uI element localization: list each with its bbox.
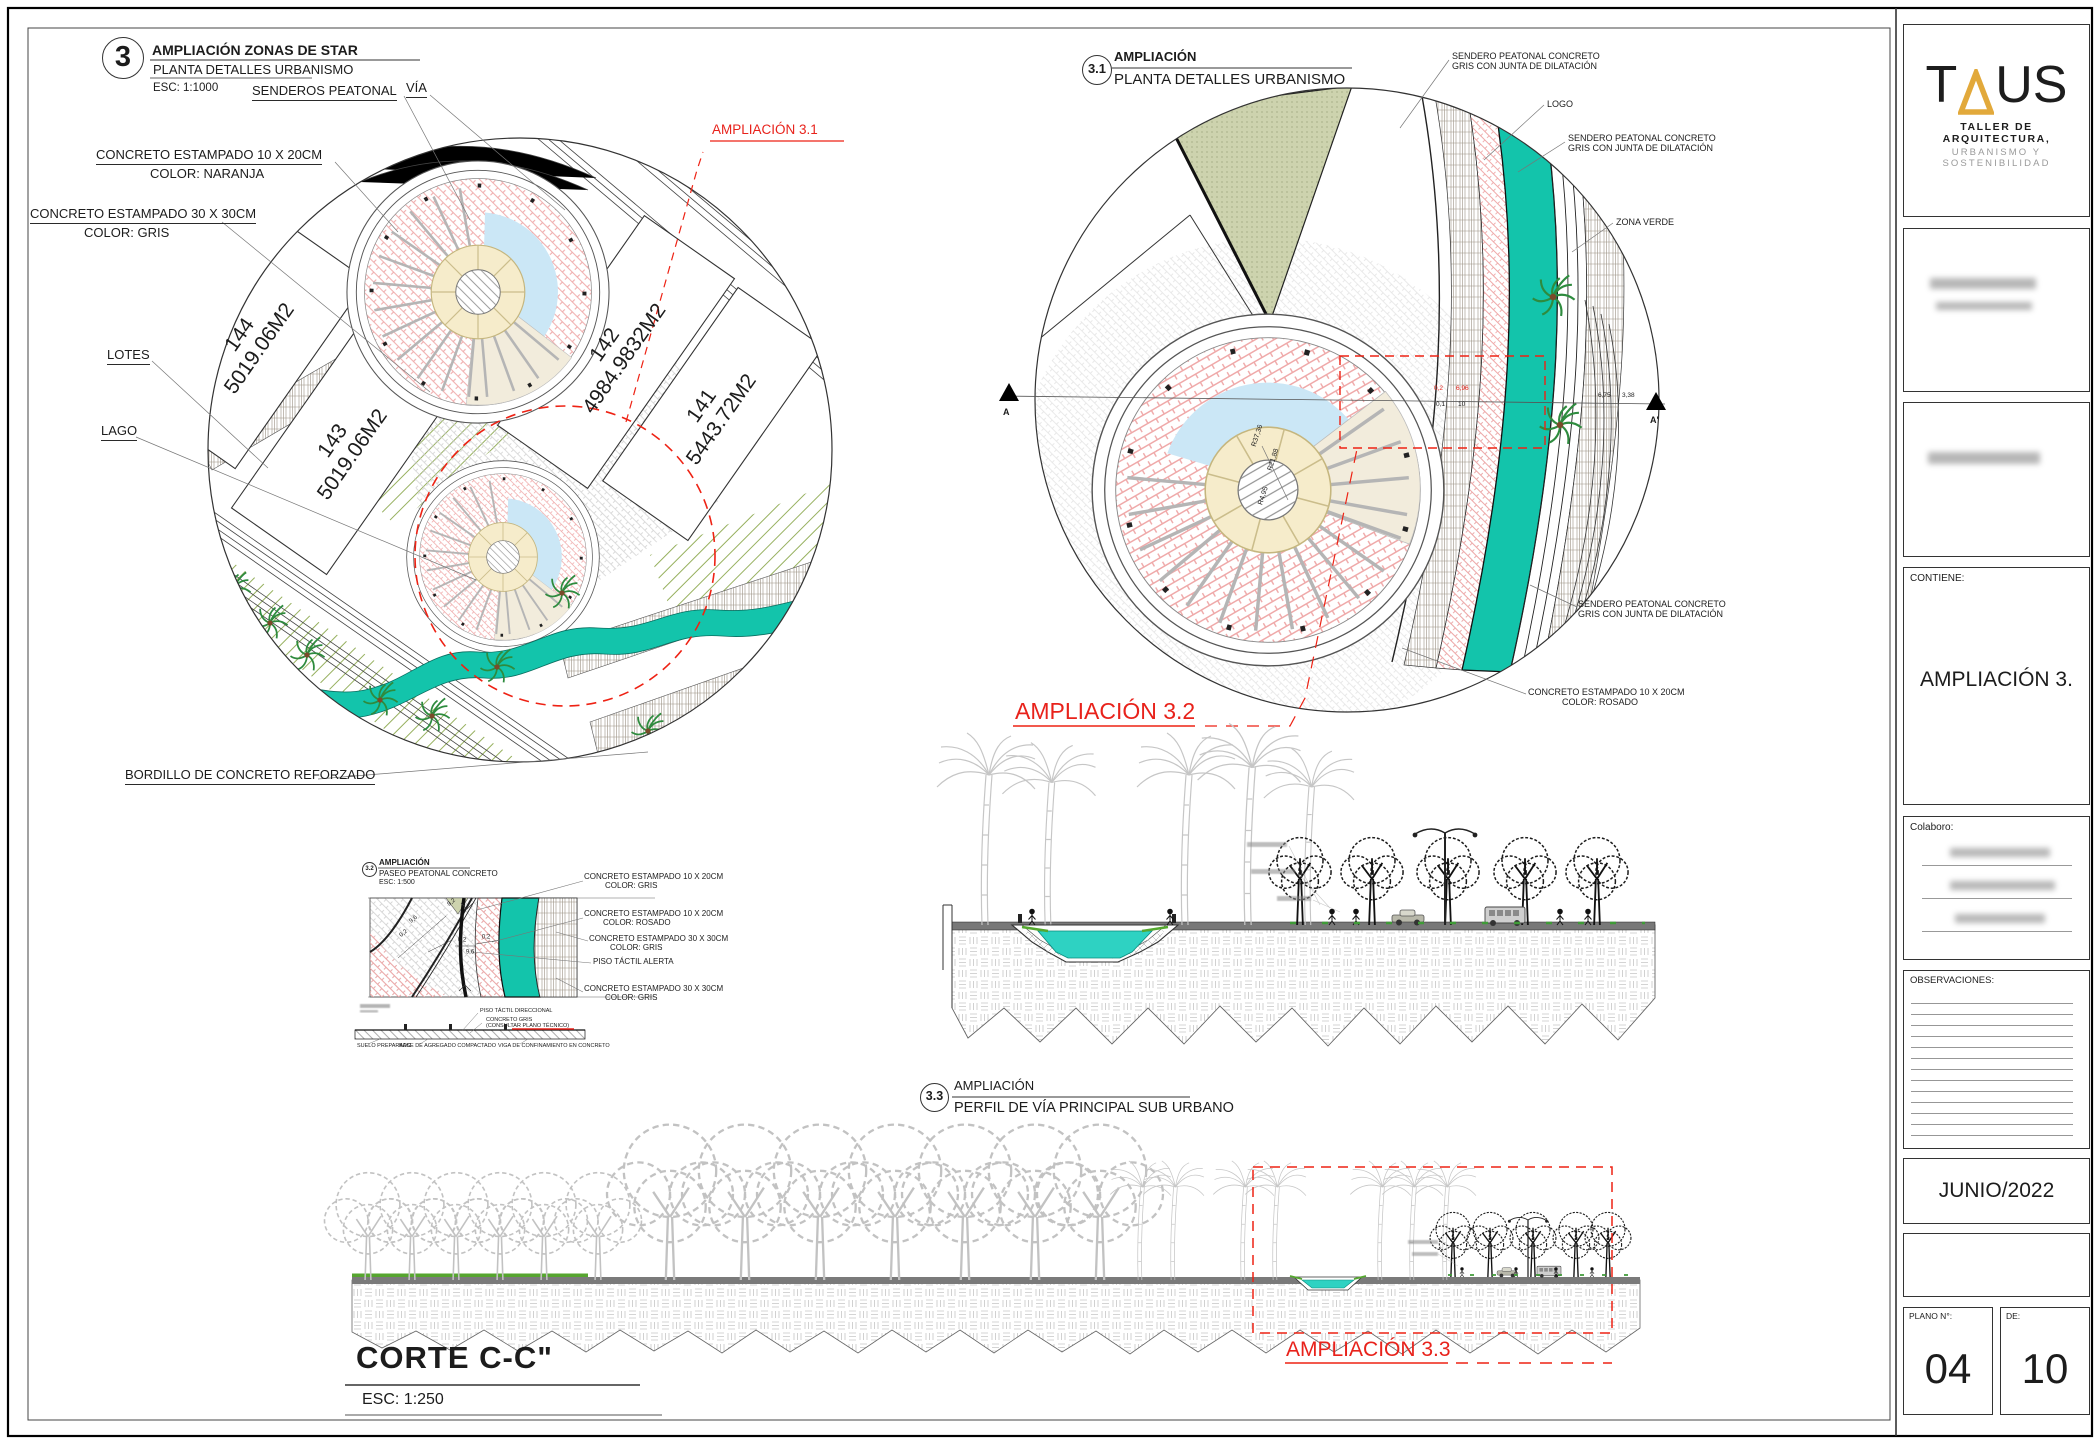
- date-value: JUNIO/2022: [1939, 1179, 2055, 1203]
- plano-value: 04: [1925, 1345, 1972, 1393]
- detail32-title: AMPLIACIÓN: [379, 858, 430, 867]
- label-rosado-l2: COLOR: ROSADO: [1562, 697, 1638, 707]
- detail31-subtitle: PLANTA DETALLES URBANISMO: [1114, 71, 1345, 88]
- titleblock-contiene-box: CONTIENE: AMPLIACIÓN 3.: [1903, 567, 2090, 805]
- titleblock-firm-box: [1903, 228, 2090, 392]
- observaciones-lines: [1911, 1003, 2073, 1145]
- label-concreto-gris-2: COLOR: GRIS: [84, 226, 169, 241]
- ref-ampliacion-32: AMPLIACIÓN 3.2: [1015, 698, 1195, 724]
- plan-sheet: 3 AMPLIACIÓN ZONAS DE STAR PLANTA DETALL…: [0, 0, 2100, 1444]
- dim-black-4: 3,38: [1622, 392, 1635, 399]
- label-logo: LOGO: [1547, 99, 1573, 109]
- section-label-a: A: [1003, 407, 1010, 417]
- logo-letter-t: T: [1925, 55, 1957, 115]
- label-concreto-naranja-2: COLOR: NARANJA: [150, 167, 264, 182]
- dim-black-2: 10: [1458, 401, 1465, 408]
- titleblock-plano-box: PLANO N°: 04: [1903, 1307, 1993, 1415]
- detail31-title: AMPLIACIÓN: [1114, 50, 1196, 65]
- titleblock-date-box: JUNIO/2022: [1903, 1158, 2090, 1224]
- observaciones-label: OBSERVACIONES:: [1910, 976, 1994, 987]
- detail31-plan: [999, 60, 1670, 742]
- section-profile-aa: [937, 723, 1655, 1046]
- redacted-name-2: [1950, 881, 2055, 890]
- label-lotes: LOTES: [107, 348, 150, 365]
- dim-red-1: 0,2: [1434, 385, 1443, 392]
- micro-labels: [1247, 842, 1340, 912]
- d32-sec-label5: BASE DE AGREGADO COMPACTADO: [399, 1043, 496, 1049]
- label-sendero1-l1: SENDERO PEATONAL CONCRETO: [1452, 51, 1600, 61]
- label-via: VÍA: [406, 81, 427, 98]
- detail32-number: 3.2: [362, 862, 377, 877]
- redacted-text-3: [1928, 452, 2040, 464]
- corte-scale: ESC: 1:250: [362, 1391, 444, 1409]
- corte-title: CORTE C-C": [356, 1340, 553, 1376]
- titleblock-logo-box: T US TALLER DE ARQUITECTURA, URBANISMO Y…: [1903, 24, 2090, 217]
- d32-sec-label6: VIGA DE CONFINAMIENTO EN CONCRETO: [498, 1043, 610, 1049]
- redacted-name-3: [1955, 914, 2045, 923]
- dim-red-2: 6,96: [1456, 385, 1469, 392]
- redacted-text-1: [1930, 278, 2036, 289]
- detail33-subtitle: PERFIL DE VÍA PRINCIPAL SUB URBANO: [954, 1100, 1234, 1117]
- label-sendero3-l2: GRIS CON JUNTA DE DILATACIÓN: [1578, 609, 1723, 619]
- logo-subtitle-2: URBANISMO Y SOSTENIBILIDAD: [1910, 147, 2083, 169]
- d32-sec-label3: (CONSULTAR PLANO TÉCNICO): [486, 1023, 569, 1029]
- d32-label1-l2: COLOR: GRIS: [605, 881, 657, 890]
- dim-black-3: 6,75: [1598, 392, 1611, 399]
- label-rosado-l1: CONCRETO ESTAMPADO 10 X 20CM: [1528, 687, 1685, 697]
- detail33-number: 3.3: [920, 1083, 949, 1112]
- d32-sec-label1: PISO TÁCTIL DIRECCIONAL: [480, 1008, 552, 1014]
- d32-label2-l2: COLOR: ROSADO: [603, 918, 671, 927]
- d32-label2-l1: CONCRETO ESTAMPADO 10 X 20CM: [584, 909, 723, 918]
- label-senderos-peatonal: SENDEROS PEATONAL: [252, 84, 397, 101]
- titleblock-de-box: DE: 10: [2000, 1307, 2090, 1415]
- plano-label: PLANO N°:: [1909, 1312, 1952, 1322]
- label-zona-verde: ZONA VERDE: [1616, 217, 1674, 227]
- detail33-title: AMPLIACIÓN: [954, 1079, 1034, 1094]
- d32-dim5: 0,2: [482, 935, 490, 942]
- signature-line-2: [1922, 898, 2072, 899]
- label-sendero2-l2: GRIS CON JUNTA DE DILATACIÓN: [1568, 143, 1713, 153]
- colaboro-label: Colaboro:: [1910, 822, 1953, 834]
- ref-ampliacion-31: AMPLIACIÓN 3.1: [712, 122, 818, 138]
- contiene-label: CONTIENE:: [1910, 573, 1964, 585]
- d32-label3-l2: COLOR: GRIS: [610, 943, 662, 952]
- titleblock-observaciones-box: OBSERVACIONES:: [1903, 970, 2090, 1149]
- d32-label1-l1: CONCRETO ESTAMPADO 10 X 20CM: [584, 872, 723, 881]
- d32-label3-l1: CONCRETO ESTAMPADO 30 X 30CM: [589, 934, 728, 943]
- contiene-value: AMPLIACIÓN 3.: [1920, 668, 2073, 692]
- detail31-number: 3.1: [1082, 55, 1112, 85]
- d32-label4: PISO TÁCTIL ALERTA: [593, 957, 674, 966]
- signature-line-3: [1922, 931, 2072, 932]
- detail32-scale: ESC: 1:500: [379, 879, 415, 887]
- logo-triangle-icon: [1958, 69, 1994, 115]
- label-concreto-naranja-1: CONCRETO ESTAMPADO 10 X 20CM: [96, 148, 322, 165]
- de-label: DE:: [2006, 1312, 2020, 1322]
- redacted-text-2: [1936, 302, 2032, 310]
- taus-logo: T US TALLER DE ARQUITECTURA, URBANISMO Y…: [1910, 55, 2083, 169]
- de-value: 10: [2022, 1345, 2069, 1393]
- redacted-name-1: [1950, 848, 2050, 857]
- detail3-number: 3: [102, 37, 144, 79]
- d32-label5-l1: CONCRETO ESTAMPADO 30 X 30CM: [584, 984, 723, 993]
- titleblock-empty-box: [1903, 1233, 2090, 1297]
- label-concreto-gris-1: CONCRETO ESTAMPADO 30 X 30CM: [30, 207, 256, 224]
- d32-dim6: 9,6: [466, 950, 474, 957]
- label-sendero1-l2: GRIS CON JUNTA DE DILATACIÓN: [1452, 61, 1597, 71]
- label-sendero2-l1: SENDERO PEATONAL CONCRETO: [1568, 133, 1716, 143]
- titleblock-project-box: [1903, 402, 2090, 557]
- detail3-scale: ESC: 1:1000: [153, 82, 218, 95]
- signature-line-1: [1922, 865, 2072, 866]
- d32-label5-l2: COLOR: GRIS: [605, 993, 657, 1002]
- section-label-a2: A': [1650, 415, 1659, 425]
- section-marker-a: [999, 383, 1019, 401]
- label-lago: LAGO: [101, 424, 137, 441]
- ref-ampliacion-33: AMPLIACIÓN 3.3: [1286, 1338, 1451, 1362]
- label-bordillo: BORDILLO DE CONCRETO REFORZADO: [125, 768, 375, 785]
- detail3-subtitle: PLANTA DETALLES URBANISMO: [153, 63, 353, 78]
- d32-dim4: 0,2: [458, 938, 466, 945]
- dim-black-1: 0,1: [1436, 401, 1445, 408]
- detail32-subtitle: PASEO PEATONAL CONCRETO: [379, 869, 498, 878]
- label-sendero3-l1: SENDERO PEATONAL CONCRETO: [1578, 599, 1726, 609]
- logo-subtitle-1: TALLER DE ARQUITECTURA,: [1910, 121, 2083, 145]
- detail3-title: AMPLIACIÓN ZONAS DE STAR: [152, 42, 358, 58]
- logo-letters-us: US: [1995, 55, 2067, 115]
